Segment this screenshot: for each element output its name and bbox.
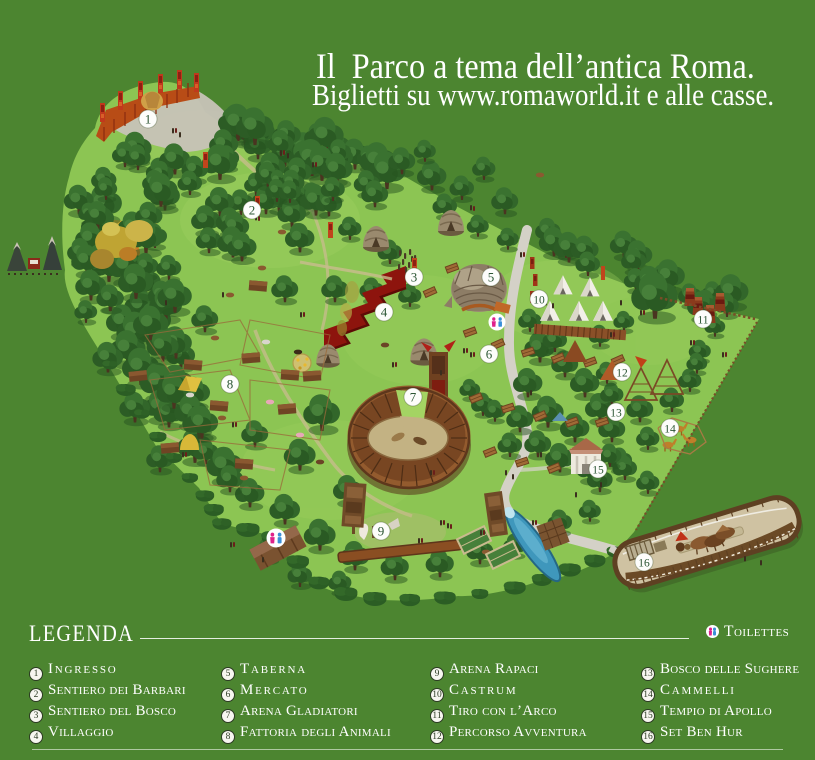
svg-text:7: 7 <box>410 389 417 404</box>
svg-text:10: 10 <box>533 294 545 306</box>
svg-text:8: 8 <box>227 376 234 391</box>
svg-text:11: 11 <box>697 314 708 326</box>
svg-text:2: 2 <box>249 202 256 217</box>
svg-text:3: 3 <box>411 269 418 284</box>
svg-text:14: 14 <box>664 423 676 435</box>
svg-text:12: 12 <box>616 367 628 379</box>
svg-text:1: 1 <box>145 111 152 126</box>
svg-text:9: 9 <box>378 523 385 538</box>
svg-text:16: 16 <box>638 557 650 569</box>
svg-text:4: 4 <box>381 304 388 319</box>
svg-text:13: 13 <box>610 407 622 419</box>
svg-text:15: 15 <box>592 464 604 476</box>
svg-text:6: 6 <box>486 346 493 361</box>
svg-text:5: 5 <box>488 269 495 284</box>
